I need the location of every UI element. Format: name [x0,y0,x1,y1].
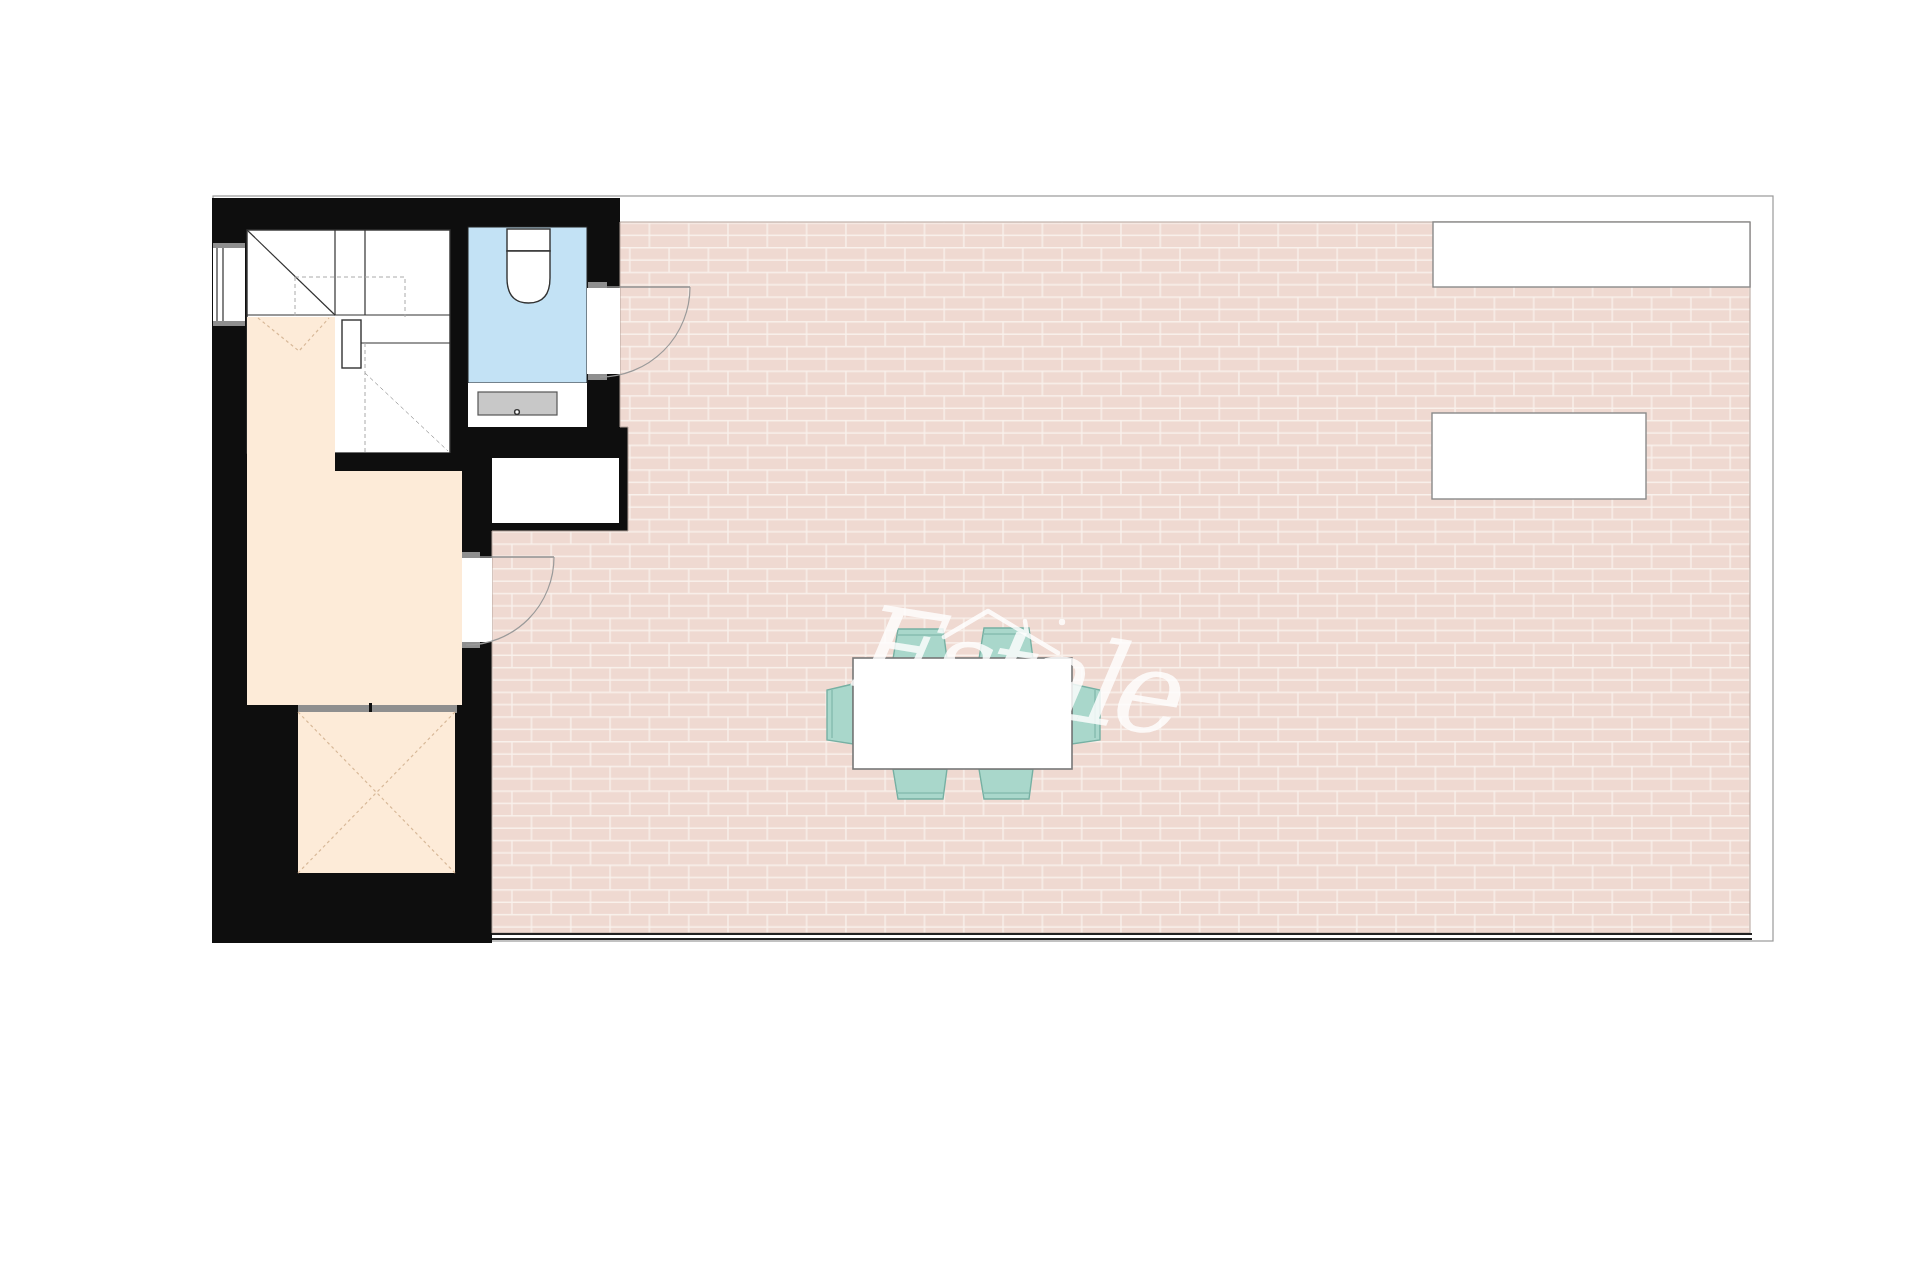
window-left-glass [213,243,245,326]
window-left-cap-bottom [213,321,245,326]
terrace-feature-box [1432,413,1646,499]
bathroom [468,227,587,427]
storage-niche [492,458,619,523]
stair-newel-post [342,320,361,368]
toilet-icon [507,229,550,303]
sink-drain [515,410,520,415]
bathroom-door-opening [587,288,620,374]
floor-plan-drawing: Estale [0,0,1920,1280]
chair-bottom-right [979,769,1033,799]
chair-bottom-left [893,769,947,799]
window-left-cap-top [213,243,245,248]
hallway-door-opening [462,558,492,642]
terrace-floor [492,222,1750,933]
floor-plan-page: Estale [0,0,1920,1280]
wall-stub-below-stairs [335,453,462,471]
void-room [298,712,455,873]
terrace-planter-top [1433,222,1750,287]
roof-chimney-tick [1025,621,1027,634]
void-room-floor [298,712,455,873]
roof-accent-dot [1059,619,1065,625]
window-left [213,243,245,326]
toilet-tank [507,229,550,251]
sliding-window-band [298,705,457,713]
toilet-bowl [507,251,550,303]
